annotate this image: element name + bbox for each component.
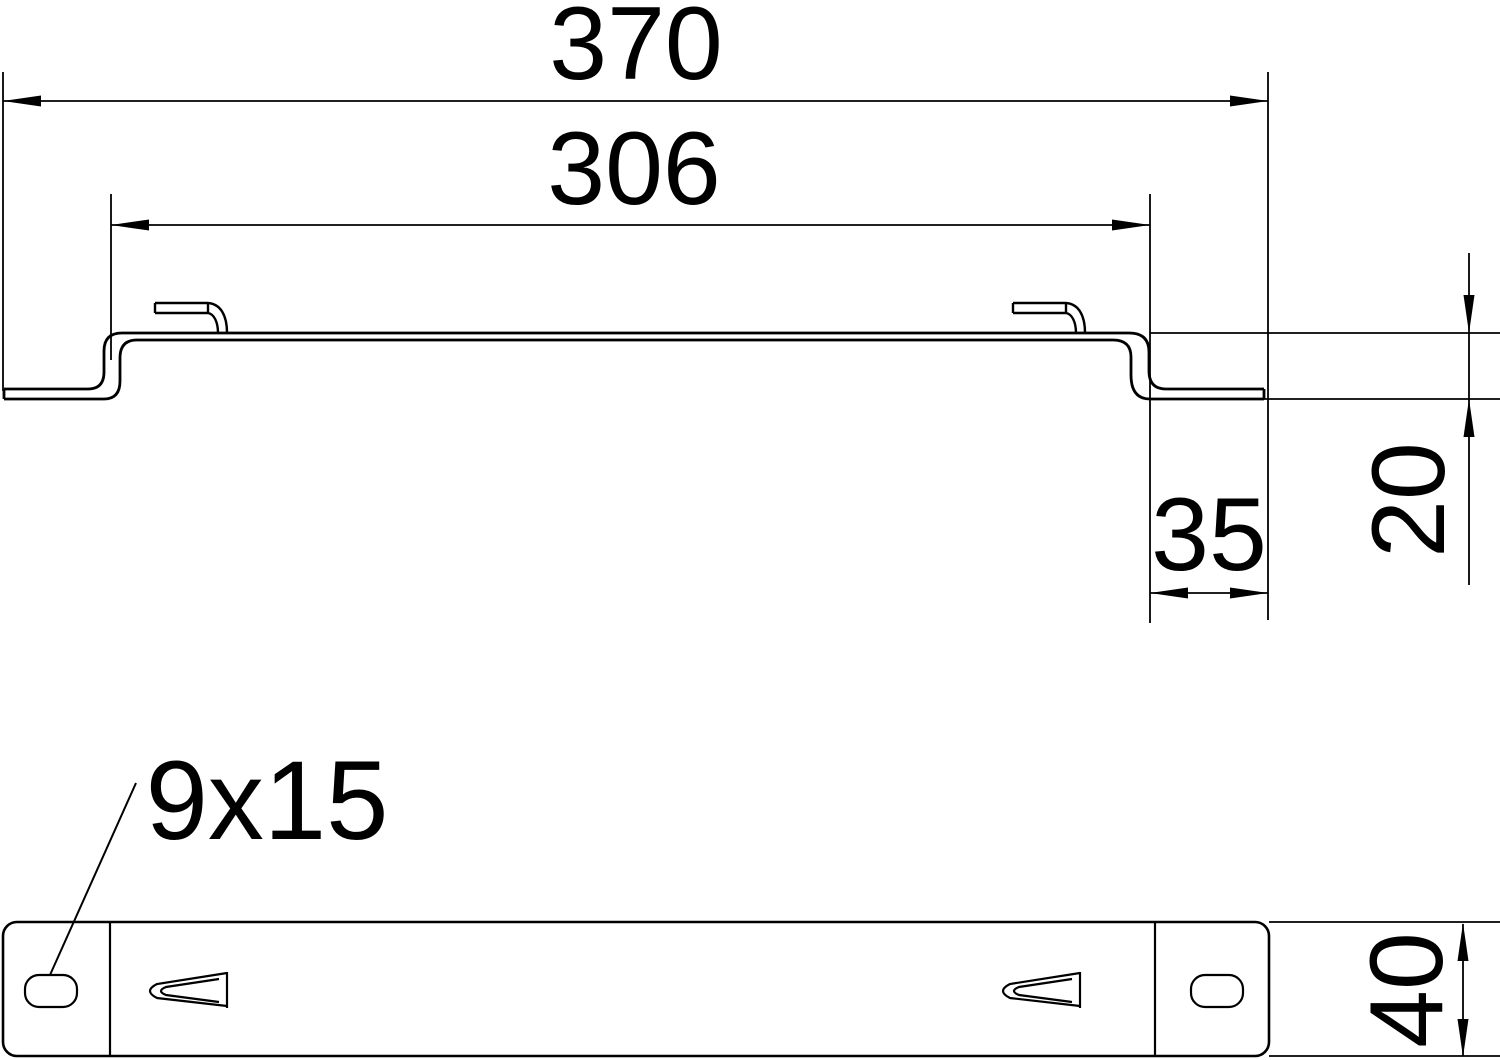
dim-label-end-flange-width: 35 [1151,477,1267,593]
arrowhead-top [1464,295,1475,333]
arrowhead-left [3,96,41,107]
arrowhead-left [111,220,149,231]
side-view-dimensions: 370 306 35 20 [3,0,1500,623]
dim-plate-width: 40 [1269,922,1500,1057]
arrowhead-right [1112,220,1150,231]
dim-label-plate-width: 40 [1349,932,1465,1048]
leader-line [50,783,136,975]
hook-tab-left-side [155,303,227,333]
dimension-drawing: 370 306 35 20 [0,0,1500,1060]
dim-slot-size: 9x15 [50,738,388,975]
dim-profile-depth: 20 [1351,253,1475,585]
dim-end-flange-width: 35 [1150,477,1268,599]
slot-hole-right [1191,975,1243,1007]
side-view [4,303,1264,399]
dim-label-slot-size: 9x15 [146,738,389,863]
slot-hole-left [25,975,77,1007]
dim-label-profile-depth: 20 [1351,442,1467,558]
plan-view-dimensions: 9x15 40 [50,738,1500,1057]
dim-label-inner-width: 306 [547,111,721,227]
hook-tab-right-side [1013,303,1085,333]
arrowhead-right [1230,96,1268,107]
technical-drawing-canvas: 370 306 35 20 [0,0,1500,1060]
arrowhead-bottom [1464,399,1475,437]
dim-inner-width: 306 [111,111,1150,623]
hook-tab-right-plan [1003,972,1080,1008]
profile-bottom-surface [4,340,1264,399]
plan-view [3,922,1269,1056]
hook-tab-left-plan [150,972,227,1008]
dim-label-overall-width: 370 [549,0,723,102]
